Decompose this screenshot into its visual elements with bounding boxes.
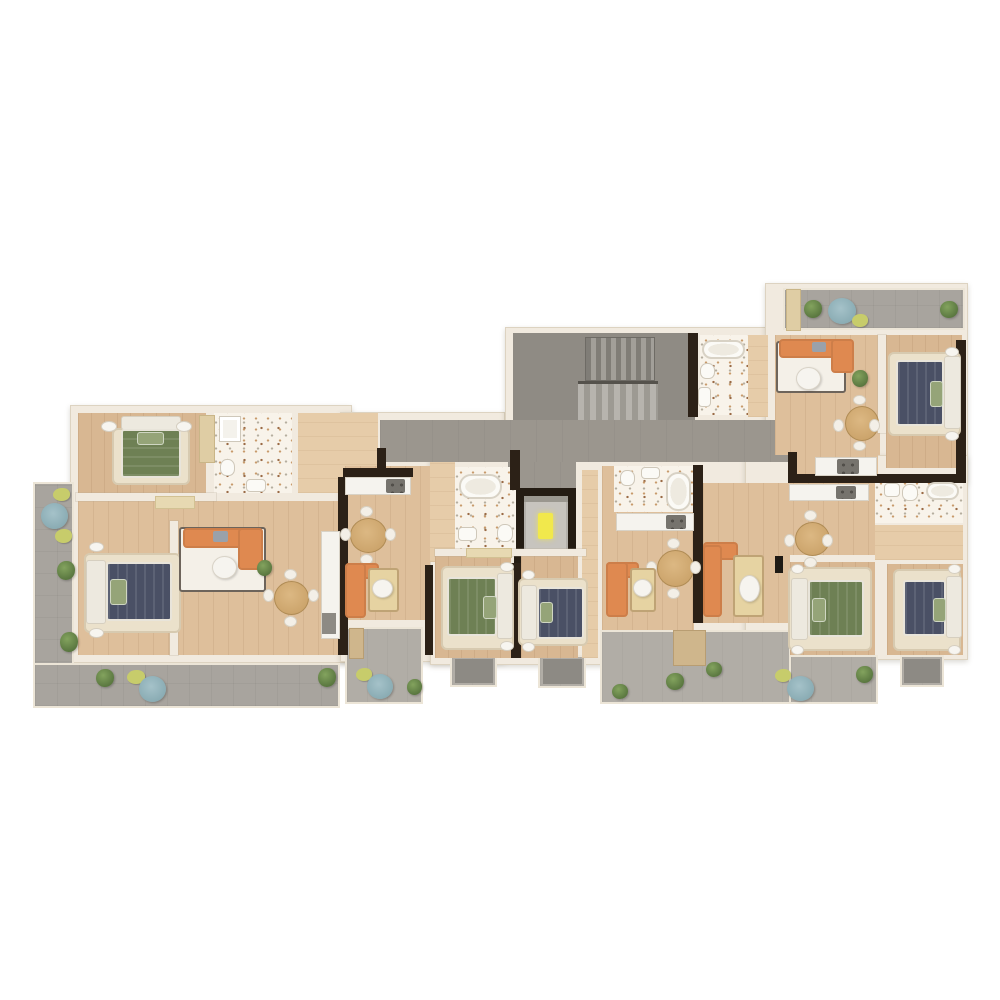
- apt4-chair-4: [822, 534, 833, 547]
- apt5-bed1-pillow: [930, 381, 943, 407]
- apt1-coffee-table: [212, 556, 237, 579]
- apt2-bathtub: [459, 474, 502, 499]
- apt4-kitchen: [789, 484, 869, 501]
- apt5-toilet2: [902, 484, 918, 501]
- apt5b-lamp-2: [948, 645, 961, 655]
- terrace-bean-2: [55, 529, 72, 543]
- apt1-chair-4: [308, 589, 319, 602]
- apt4-bedroom-headboard: [791, 578, 808, 640]
- apt3-cooktop: [666, 515, 686, 529]
- apt2-sofa: [345, 563, 366, 618]
- terrace-left-bottom: [33, 663, 340, 708]
- apt2-cooktop: [386, 479, 405, 493]
- apt3-toilet: [620, 470, 635, 486]
- terrace-tr-bean: [852, 314, 868, 327]
- apt5b-pillow: [933, 598, 946, 622]
- balcony-bed1-mat: [455, 659, 493, 683]
- terrace-table-2: [139, 676, 166, 702]
- apt1-lamp-4: [89, 628, 104, 638]
- bedroom2-headboard: [521, 585, 537, 640]
- apt5-plant: [852, 370, 868, 387]
- apt1-closet2: [199, 415, 215, 463]
- apt5-hall2-floor: [875, 525, 963, 560]
- apt1-sink: [246, 479, 266, 492]
- bedroom2-lamp-2: [522, 642, 535, 652]
- apt3-dining-table: [657, 550, 694, 587]
- balcony-center-table: [787, 676, 814, 701]
- wall-dark-5: [510, 450, 520, 490]
- floor-plan-render: [0, 0, 1000, 1000]
- terrace-table-1: [41, 503, 68, 529]
- apt5-hall-floor: [748, 335, 768, 417]
- apt5b-lamp-1: [948, 564, 961, 574]
- apt5-bathtub2: [926, 482, 959, 500]
- apt2-chair-1: [360, 506, 373, 517]
- apt5-lamp-3: [945, 347, 959, 357]
- apt5-coffee-table: [796, 367, 821, 390]
- balcony-center-plant-1: [612, 684, 628, 699]
- apt5-bed1-headboard: [944, 356, 961, 429]
- elevator-light: [538, 513, 553, 539]
- apt3-chair-1: [667, 538, 680, 549]
- apt1-plant-1: [257, 560, 272, 576]
- apt1-lamp-3: [89, 542, 104, 552]
- apt1-kitchen-mat: [322, 613, 336, 634]
- wall-dark-4: [693, 465, 703, 623]
- bedroom1-lamp-2: [500, 641, 514, 651]
- apt1-dining-table: [274, 581, 309, 615]
- terrace-tr-plant-1: [804, 300, 822, 318]
- wall-dark-2: [425, 565, 433, 655]
- stairwell-wall: [688, 333, 698, 417]
- balcony-bed2-mat: [543, 659, 582, 684]
- balcony-center-plant-3: [706, 662, 722, 677]
- apt1-bed2-pillow: [110, 579, 127, 605]
- terrace-plant-4: [318, 668, 336, 687]
- apt3-coffee-table: [633, 579, 652, 597]
- bedroom2-pillow: [540, 602, 553, 623]
- apt1-chair-3: [263, 589, 274, 602]
- apt4-lamp-1: [791, 564, 804, 574]
- balcony2-bench: [349, 628, 364, 659]
- apt5-lamp-4: [945, 431, 959, 441]
- terrace-tr-cabinet: [786, 289, 801, 331]
- apt5-bathtub: [702, 340, 745, 359]
- balcony-right-plant: [856, 666, 873, 683]
- apt1-shower: [219, 416, 241, 442]
- wall-dark-10: [377, 448, 386, 478]
- apt4-tv: [775, 556, 783, 573]
- apt3-chair-4: [690, 561, 701, 574]
- apt3-chair-2: [667, 588, 680, 599]
- apt2-chair-4: [385, 528, 396, 541]
- apt4-coffee-table: [739, 575, 760, 602]
- wall-dark-9: [788, 452, 797, 476]
- apt1-bed1-headboard: [121, 416, 181, 430]
- apt3-sink: [641, 467, 660, 479]
- balcony-smallright-mat: [904, 659, 940, 683]
- apt2-shelf: [466, 548, 512, 558]
- balcony2-plant: [407, 679, 422, 695]
- terrace-tr-plant-2: [940, 301, 958, 318]
- apt2-hall-floor: [430, 462, 455, 562]
- apt5-chair-2: [853, 441, 866, 451]
- apt1-sofa-cushion: [213, 531, 228, 542]
- apt5-chair-4: [869, 419, 880, 432]
- apt5-chair-3: [833, 419, 844, 432]
- apt1-lamp-1: [101, 421, 117, 432]
- apt5b-headboard: [946, 576, 962, 638]
- apt3-sofa: [606, 562, 628, 617]
- bedroom1-lamp-1: [500, 562, 514, 572]
- apt1-bed2-headboard: [86, 560, 106, 624]
- apt3-bathtub: [666, 472, 691, 511]
- apt5-sofa-cushion: [812, 342, 826, 352]
- apt4-lamp-2: [791, 645, 804, 655]
- apt4-sofa: [703, 545, 722, 617]
- apt5-cooktop: [837, 459, 859, 474]
- apt1-bed1-pillow: [137, 432, 164, 445]
- apt2-chair-3: [340, 528, 351, 541]
- wall-apt5: [878, 335, 886, 433]
- stairs-lower-flight: [578, 381, 658, 420]
- bedroom1-pillow: [483, 596, 497, 619]
- stairs-upper-flight: [585, 337, 655, 381]
- terrace-plant-3: [96, 669, 114, 687]
- apt1-toilet: [220, 459, 235, 476]
- apt4-cooktop: [836, 486, 856, 499]
- apt2-toilet: [497, 524, 513, 542]
- apt5-sink2: [884, 483, 900, 497]
- apt5-toilet: [700, 363, 715, 379]
- apt2-coffee-table: [372, 579, 393, 598]
- balcony-center-plant-2: [666, 673, 684, 690]
- terrace-plant-2: [60, 632, 78, 652]
- apt2-dining-table: [350, 518, 387, 553]
- balcony2-table: [367, 674, 393, 699]
- bedroom2-lamp-1: [522, 570, 535, 580]
- apt4-chair-1: [804, 510, 817, 521]
- apt4-bed-pillow: [812, 598, 826, 622]
- bedroom1-headboard: [497, 573, 513, 639]
- apt5-sofa-chaise: [831, 339, 854, 373]
- terrace-bean-1: [53, 488, 70, 501]
- apt4-chair-3: [784, 534, 795, 547]
- apt1-chair-2: [284, 616, 297, 627]
- apt1-lamp-2: [176, 421, 192, 432]
- apt1-closet: [155, 496, 195, 509]
- apt2-sink: [458, 527, 477, 541]
- corridor-floor: [380, 420, 790, 462]
- balcony-center-bench: [673, 630, 706, 666]
- terrace-plant-1: [57, 561, 75, 580]
- wall-apt1-a: [76, 493, 216, 501]
- apt5-chair-1: [853, 395, 866, 405]
- balcony-center-bean: [775, 669, 791, 682]
- apt1-chair-1: [284, 569, 297, 580]
- apt5-sink: [698, 387, 711, 407]
